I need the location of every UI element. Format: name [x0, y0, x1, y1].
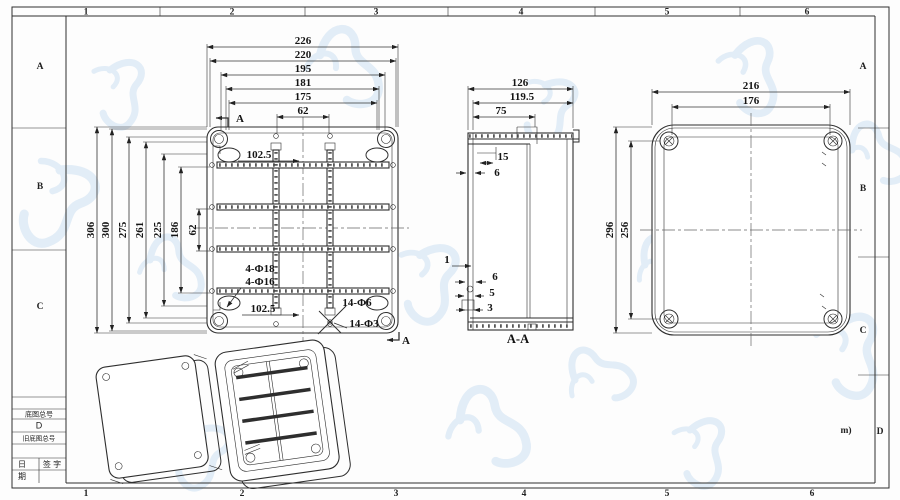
dim-15: 15 — [498, 151, 510, 163]
bottom-zone-4: 4 — [522, 489, 527, 499]
dim-119-5: 119.5 — [510, 91, 535, 103]
section-label-top: A — [236, 113, 244, 125]
left-zone-c: C — [37, 302, 44, 312]
dim-75: 75 — [496, 105, 508, 117]
top-zone-5: 5 — [665, 8, 670, 18]
dim-62v: 62 — [187, 224, 199, 236]
back-view: 216 176 296 256 — [604, 80, 862, 347]
label-holes-medium: 4-Φ16 — [245, 276, 275, 288]
section-top-dims: 126 119.5 75 — [468, 77, 573, 130]
left-zone-b: B — [37, 182, 44, 192]
dim-226: 226 — [295, 35, 312, 47]
bottom-zone-2: 2 — [240, 489, 245, 499]
dim-195: 195 — [295, 63, 312, 75]
dim-296: 296 — [604, 221, 616, 238]
dim-256: 256 — [619, 221, 631, 238]
dim-261: 261 — [134, 222, 146, 239]
dim-181: 181 — [295, 77, 312, 89]
section-caption: A-A — [507, 332, 529, 346]
dim-6-low: 6 — [492, 271, 498, 283]
top-zone-2: 2 — [230, 8, 235, 18]
title-block-row2: D — [36, 421, 43, 431]
dim-220: 220 — [295, 49, 312, 61]
label-offset-top: 102.5 — [247, 149, 272, 161]
bottom-zone-5: 5 — [665, 489, 670, 499]
top-zone-4: 4 — [519, 8, 524, 18]
title-block-date-bottom: 期 — [18, 472, 26, 481]
dim-275: 275 — [117, 221, 129, 238]
section-view: 126 119.5 75 15 6 1 6 5 — [444, 77, 579, 346]
iso-view-open-box — [214, 337, 352, 491]
dim-300: 300 — [100, 221, 112, 238]
dim-3: 3 — [487, 302, 493, 314]
top-zone-1: 1 — [84, 8, 89, 18]
bottom-zone-3: 3 — [394, 489, 399, 499]
dim-1: 1 — [444, 254, 450, 266]
right-zone-d: D — [877, 427, 884, 437]
title-block-sign: 签 字 — [43, 459, 61, 469]
dim-5: 5 — [489, 287, 495, 299]
dim-225: 225 — [152, 221, 164, 238]
dim-216: 216 — [743, 80, 760, 92]
bottom-zone-6: 6 — [810, 489, 815, 499]
revision-note: m) — [840, 425, 851, 436]
dim-126: 126 — [512, 77, 529, 89]
label-holes-small: 14-Φ6 — [342, 297, 372, 309]
iso-view-lid — [95, 353, 222, 485]
top-zone-6: 6 — [805, 8, 810, 18]
front-view: A A — [85, 35, 410, 347]
dim-6-top: 6 — [494, 167, 500, 179]
dim-306: 306 — [85, 221, 97, 238]
front-left-dims: 306 300 275 261 225 186 62 — [85, 127, 210, 333]
right-zone-c: C — [860, 326, 867, 336]
title-block: 底图总号 D 旧底图总号 日 期 签 字 — [12, 397, 66, 483]
title-block-row3: 旧底图总号 — [23, 434, 56, 443]
label-holes-tiny: 14-Φ3 — [349, 318, 379, 330]
label-holes-large: 4-Φ18 — [245, 263, 275, 275]
title-block-date-top: 日 — [18, 460, 26, 469]
dim-176: 176 — [743, 95, 760, 107]
dim-175: 175 — [295, 91, 312, 103]
section-label-bottom: A — [402, 335, 410, 347]
dim-186: 186 — [169, 221, 181, 238]
title-block-row1: 底图总号 — [25, 410, 53, 419]
top-zone-3: 3 — [374, 8, 379, 18]
right-zone-a: A — [860, 62, 867, 72]
right-zone-b: B — [860, 184, 867, 194]
bottom-zone-1: 1 — [84, 489, 89, 499]
drawing-sheet: 1 2 3 4 5 6 1 2 3 4 5 6 A B C A B C D m) — [0, 0, 900, 500]
dim-62h: 62 — [298, 105, 310, 117]
label-offset-bottom: 102.5 — [251, 303, 276, 315]
left-zone-a: A — [37, 62, 44, 72]
